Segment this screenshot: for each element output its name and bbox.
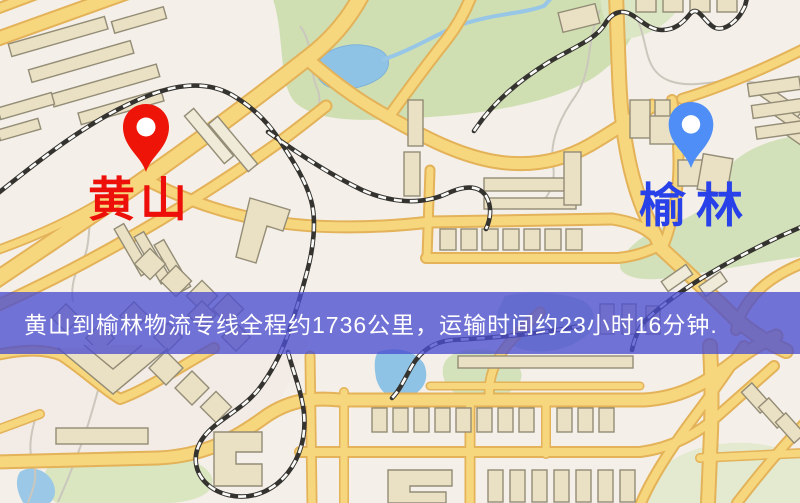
route-info-banner: 黄山到榆林物流专线全程约1736公里，运输时间约23小时16分钟.: [0, 292, 800, 354]
map-canvas[interactable]: [0, 0, 800, 503]
logistics-route-map: 黄山 榆林 黄山到榆林物流专线全程约1736公里，运输时间约23小时16分钟.: [0, 0, 800, 503]
origin-city-label: 黄山: [88, 176, 192, 223]
destination-city-label: 榆林: [639, 182, 753, 229]
route-info-text: 黄山到榆林物流专线全程约1736公里，运输时间约23小时16分钟.: [24, 306, 718, 340]
